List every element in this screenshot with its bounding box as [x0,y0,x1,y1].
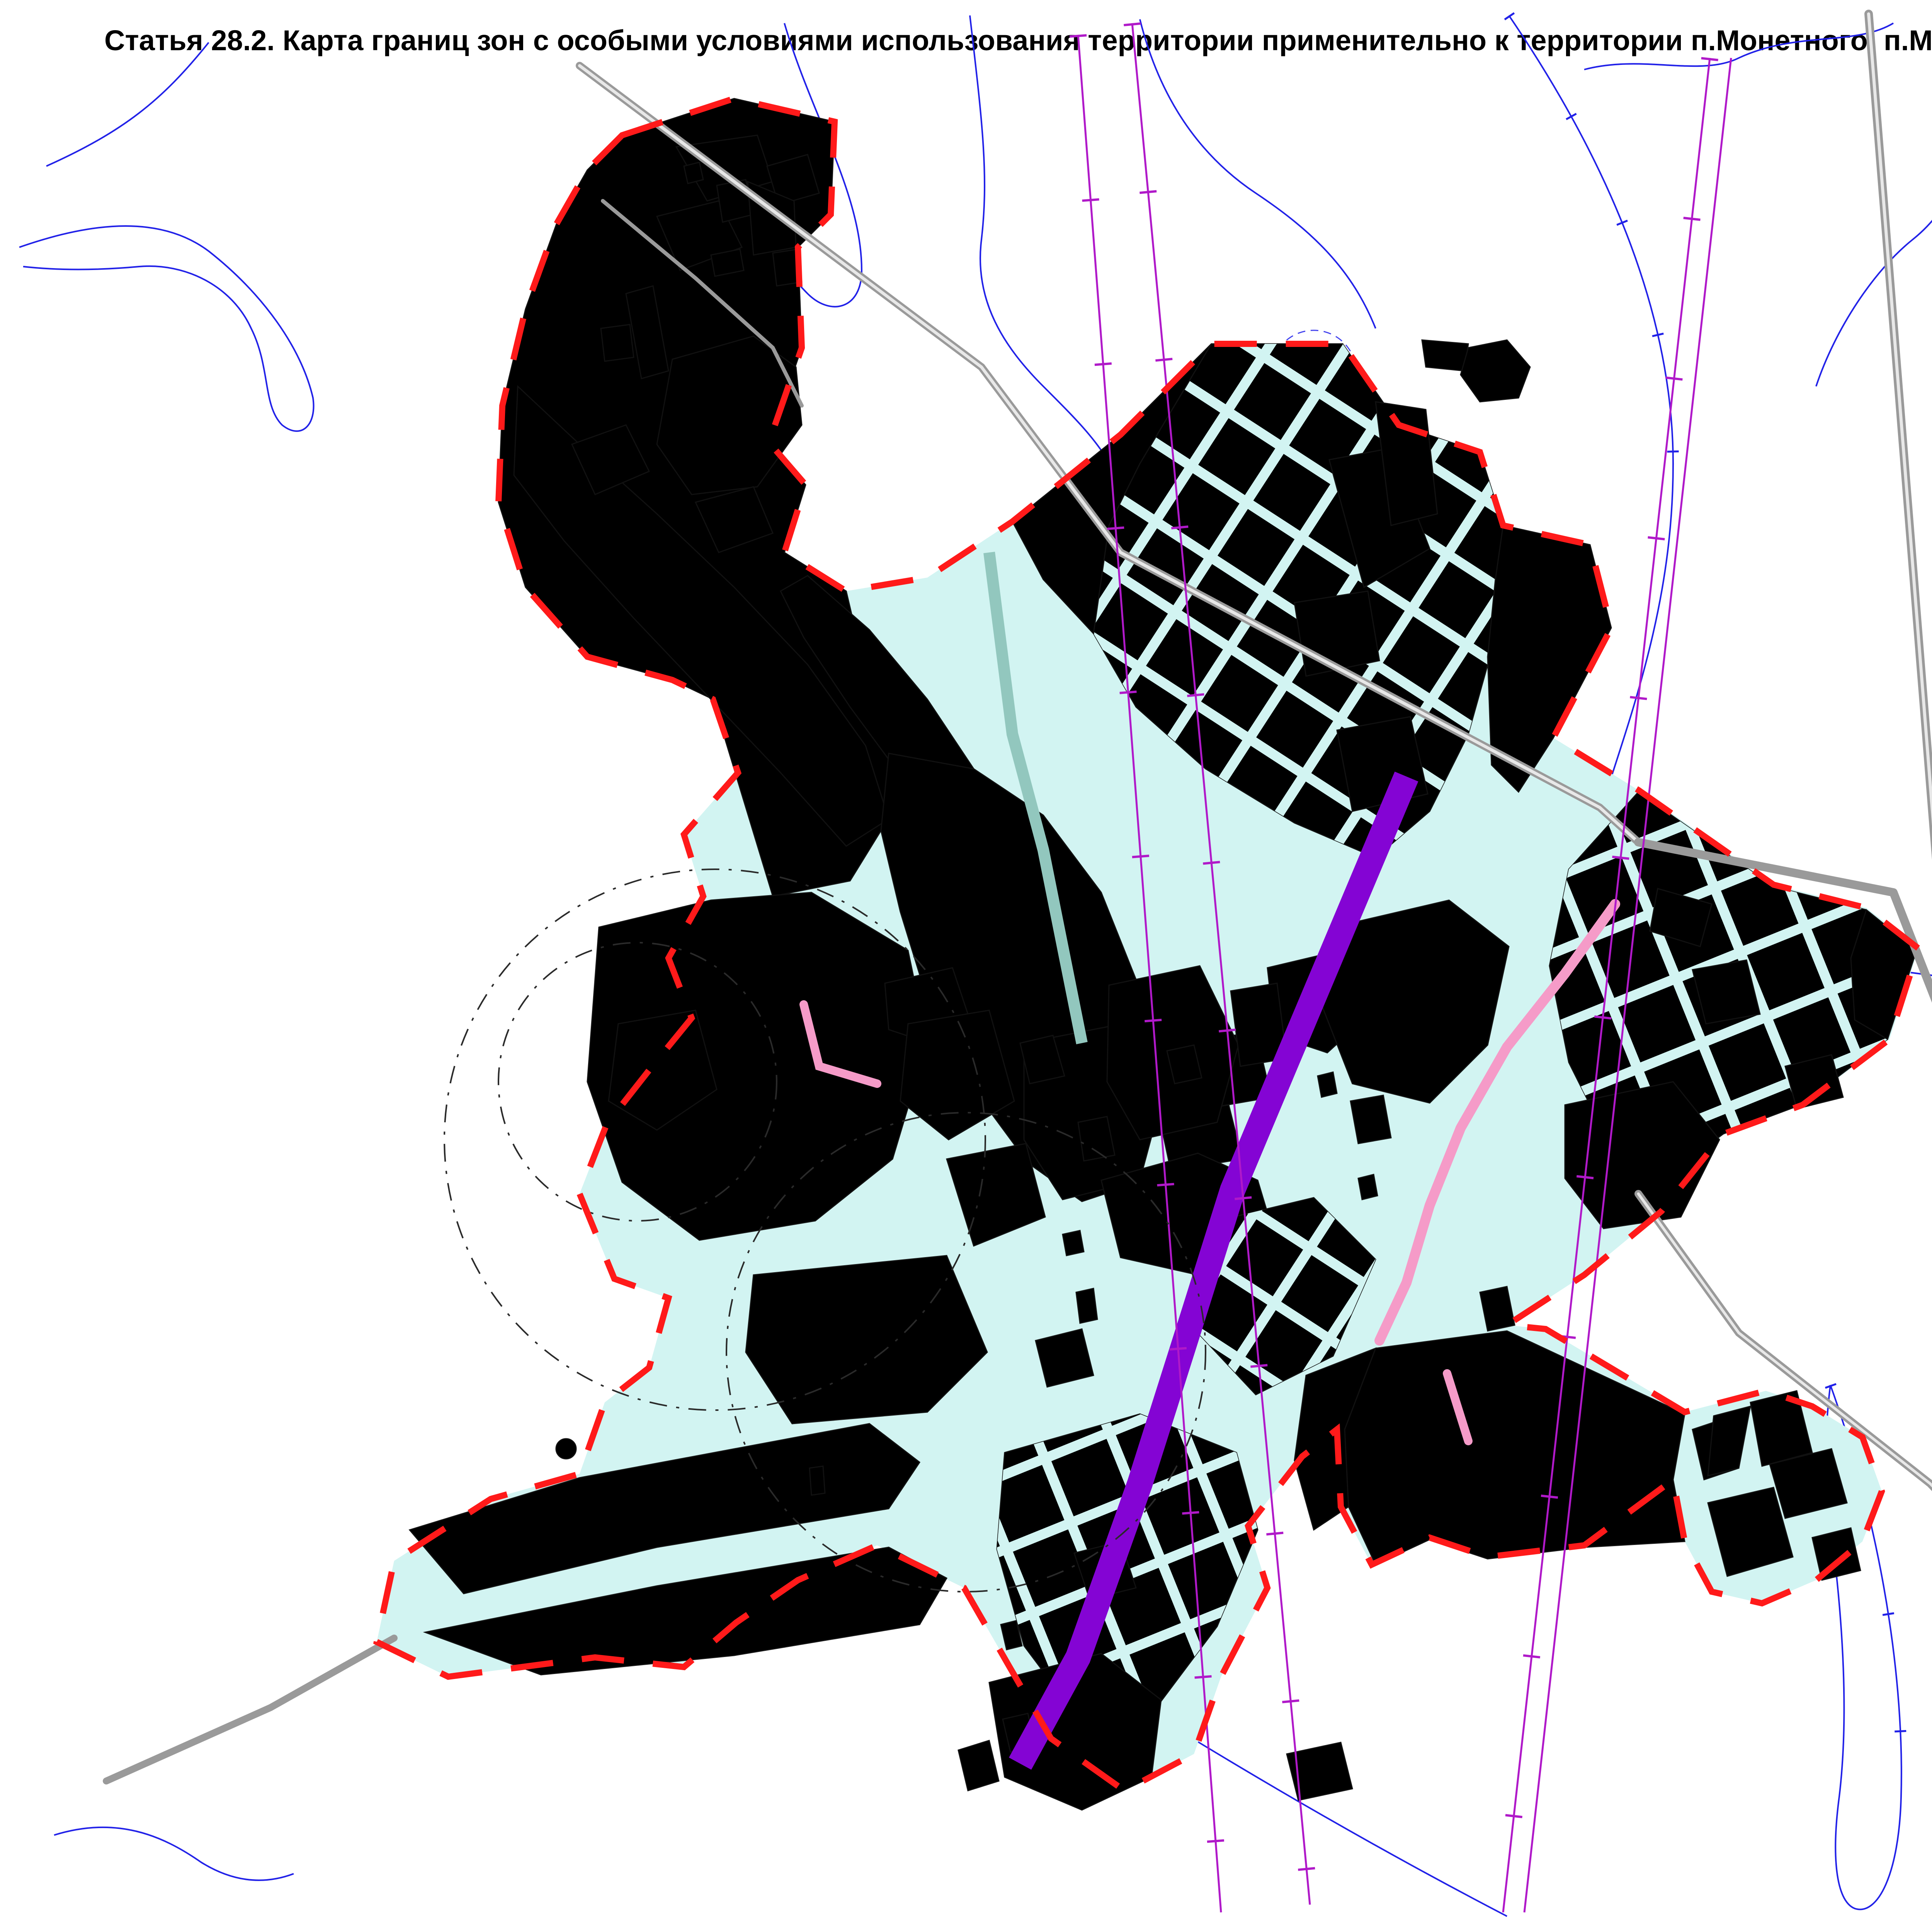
zoning-map-page: Статья 28.2. Карта границ зон с особыми … [0,0,1932,1917]
zoning-map [0,0,1932,1917]
